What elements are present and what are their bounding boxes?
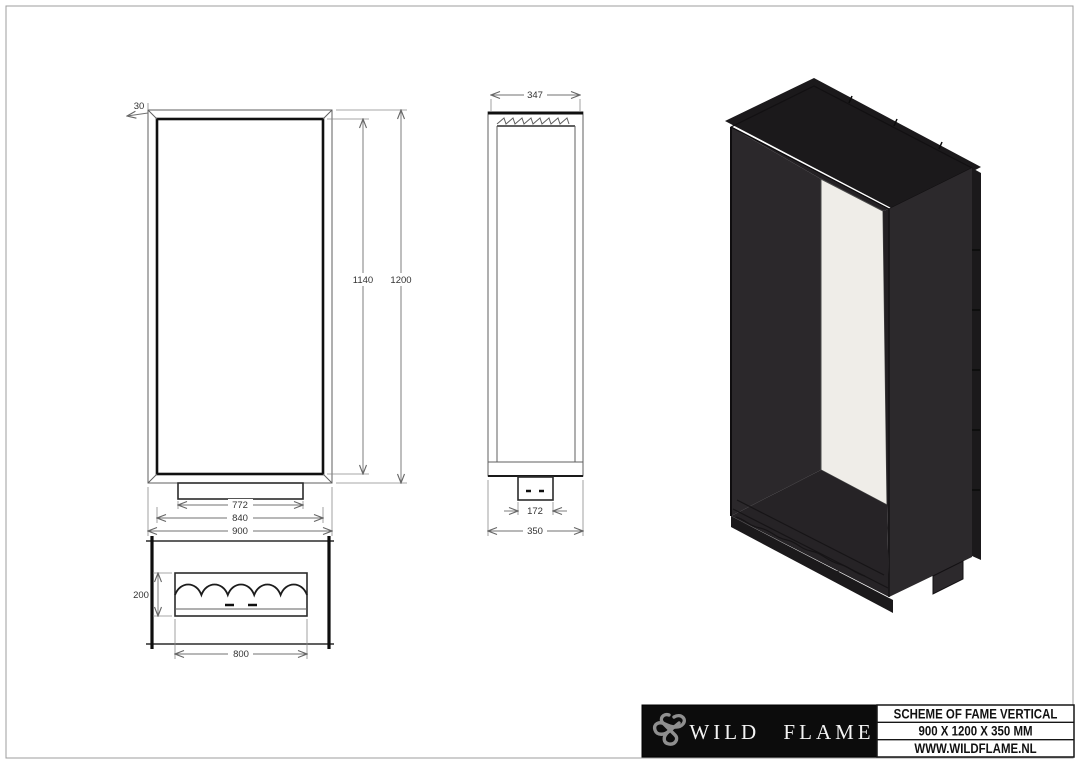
dim-label-172: 172	[527, 506, 543, 517]
dim-bottom-burner-length: 800	[175, 619, 307, 660]
dim-label-200: 200	[133, 590, 149, 601]
iso-right-flange	[972, 168, 981, 560]
dim-front-height: 1200	[336, 110, 414, 483]
dim-front-opening-height: 1140	[327, 119, 376, 474]
dim-label-900: 900	[232, 526, 248, 537]
dim-label-350: 350	[527, 526, 543, 537]
dim-label-1200: 1200	[390, 275, 411, 286]
brand-website: WWW.WILDFLAME.NL	[914, 741, 1037, 756]
dim-side-inner-depth: 347	[491, 89, 580, 111]
side-outer-body	[488, 112, 583, 476]
bottom-burner-box	[175, 573, 307, 616]
dim-label-800: 800	[233, 649, 249, 660]
front-view: 30 1140 1200 772 840	[127, 101, 414, 537]
dim-label-30: 30	[134, 101, 145, 112]
scheme-title: SCHEME OF FAME VERTICAL	[894, 707, 1058, 722]
dim-front-burner-width: 772	[178, 499, 303, 511]
side-view: 347 172 350	[488, 89, 583, 537]
dim-side-burner-depth: 172	[504, 502, 567, 517]
drawing-sheet: 30 1140 1200 772 840	[0, 0, 1080, 764]
iso-right-face	[889, 168, 972, 597]
front-outer-frame	[148, 110, 332, 483]
mitre-bottom-left	[148, 474, 157, 483]
mitre-top-left	[148, 110, 157, 119]
side-burner-box	[518, 477, 553, 500]
front-burner-tray	[178, 483, 303, 499]
isometric-view	[725, 78, 981, 613]
bottom-view: 200 800	[133, 536, 334, 660]
dim-label-772: 772	[232, 500, 248, 511]
title-block: WILD FLAME SCHEME OF FAME VERTICAL 900 X…	[642, 705, 1074, 757]
scheme-size: 900 X 1200 X 350 MM	[918, 724, 1032, 739]
iso-left-interior-wall	[731, 127, 821, 516]
dim-label-1140: 1140	[353, 275, 373, 286]
dim-label-347: 347	[527, 90, 543, 101]
mitre-top-right	[323, 110, 332, 119]
front-inner-frame	[157, 119, 323, 474]
mitre-bottom-right	[323, 474, 332, 483]
iso-glass-panel	[821, 179, 887, 505]
brand-wordmark: WILD FLAME	[689, 720, 874, 744]
side-top-serration	[497, 118, 569, 124]
drawing-canvas: 30 1140 1200 772 840	[0, 0, 1080, 764]
burner-flame-wave	[175, 585, 307, 596]
dim-label-840: 840	[232, 513, 248, 524]
dim-front-flange: 30	[127, 101, 148, 116]
